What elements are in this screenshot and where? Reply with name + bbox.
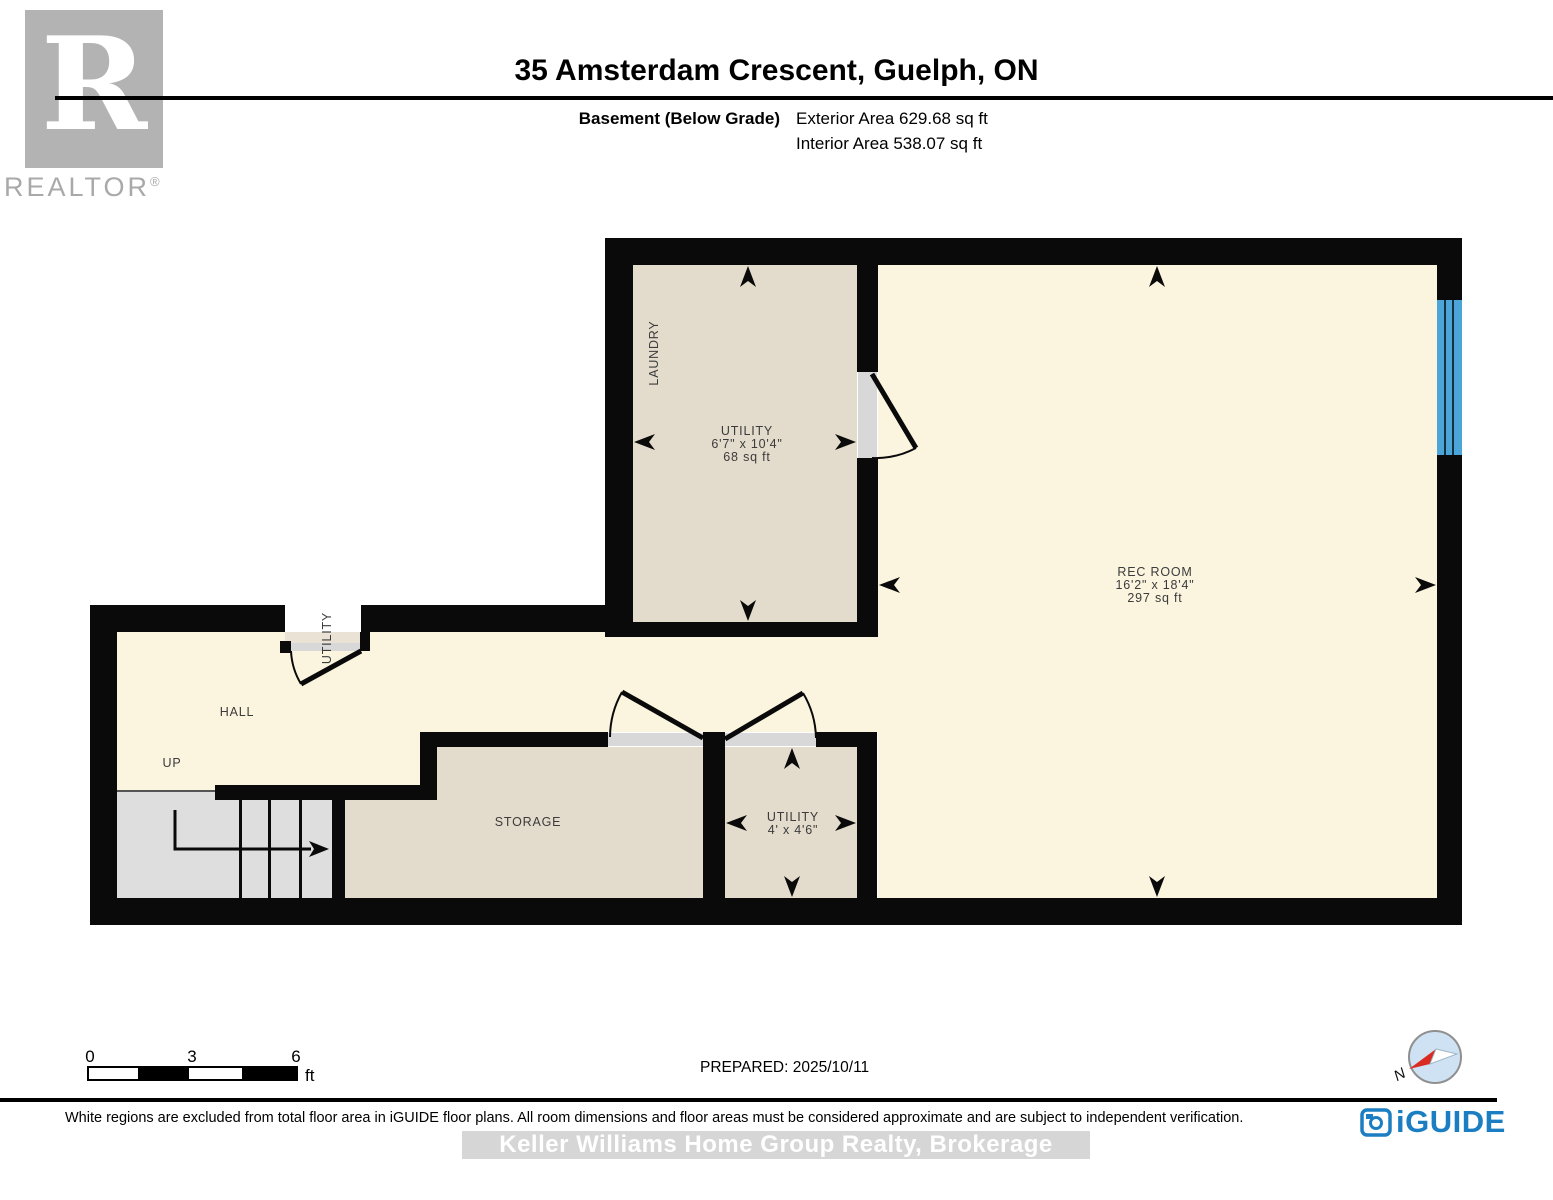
wall-stair-east [332, 800, 345, 898]
wall-hall-top-east [361, 605, 633, 632]
utility-main-area: 68 sq ft [723, 450, 770, 464]
rec-room-dimensions: 16'2" x 18'4" [1116, 578, 1195, 592]
laundry-label: LAUNDRY [647, 320, 661, 385]
wall-right-below-window [1437, 455, 1462, 925]
floor-plan-page: R REALTOR® 35 Amsterdam Crescent, Guelph… [0, 0, 1553, 1200]
wall-utility-east [857, 732, 877, 898]
wall-divider-lower [857, 458, 878, 637]
scale-tick-6: 6 [291, 1047, 300, 1066]
floor-plan-drawing: UTILITY [0, 0, 1553, 1200]
scale-unit: ft [305, 1066, 315, 1085]
wall-left [90, 605, 117, 925]
wall-hall-top-west [90, 605, 285, 632]
brokerage-watermark: Keller Williams Home Group Realty, Broke… [462, 1131, 1090, 1159]
disclaimer-text: White regions are excluded from total fl… [65, 1110, 1243, 1126]
window [1437, 300, 1462, 455]
wall-stair-bar [215, 785, 437, 800]
wall-laundry-west [605, 238, 633, 637]
scale-tick-0: 0 [85, 1047, 94, 1066]
scale-tick-3: 3 [187, 1047, 196, 1066]
wall-storage-top [420, 732, 608, 747]
scale-bar-segment [138, 1068, 189, 1079]
window-glass [1437, 300, 1462, 455]
wall-utility-west [703, 732, 725, 898]
compass: N [1391, 1031, 1461, 1085]
utility-main-dimensions: 6'7" x 10'4" [711, 437, 782, 451]
rec-room-area: 297 sq ft [1127, 591, 1182, 605]
staircase [117, 790, 332, 898]
compass-north-label: N [1391, 1065, 1409, 1085]
window-pane-line [1444, 300, 1446, 455]
iguide-camera-icon [1359, 1106, 1393, 1138]
closet-jamb-right [360, 632, 370, 651]
utility-small-dimensions: 4' x 4'6" [768, 823, 818, 837]
closet-label: UTILITY [320, 612, 334, 664]
storage-label: STORAGE [495, 815, 562, 829]
iguide-logo: iGUIDE [1359, 1104, 1506, 1140]
wall-bottom [90, 898, 1462, 925]
utility-main-label: UTILITY [721, 424, 773, 438]
window-pane-line [1452, 300, 1454, 455]
storage-door-threshold [608, 733, 703, 746]
utility-small-label: UTILITY [767, 810, 819, 824]
iguide-wordmark: iGUIDE [1396, 1104, 1506, 1140]
stairs-edge-line [117, 790, 215, 792]
stairs-up-label: UP [163, 756, 182, 770]
hall-label: HALL [220, 705, 254, 719]
prepared-date: PREPARED: 2025/10/11 [700, 1059, 869, 1077]
closet-jamb-left [280, 641, 291, 653]
scale-bar: 0 3 6 ft [85, 1047, 314, 1085]
footer-divider [0, 1098, 1497, 1102]
scale-bar-segment [242, 1068, 296, 1079]
utility-door-threshold [725, 733, 816, 746]
excluded-room-floors [345, 265, 857, 898]
wall-laundry-south [605, 622, 878, 637]
wall-top [605, 238, 1462, 265]
wall-right-above-window [1437, 238, 1462, 300]
wall-divider-upper [857, 238, 878, 372]
rec-room-label: REC ROOM [1117, 565, 1192, 579]
laundry-door-threshold [858, 372, 877, 458]
